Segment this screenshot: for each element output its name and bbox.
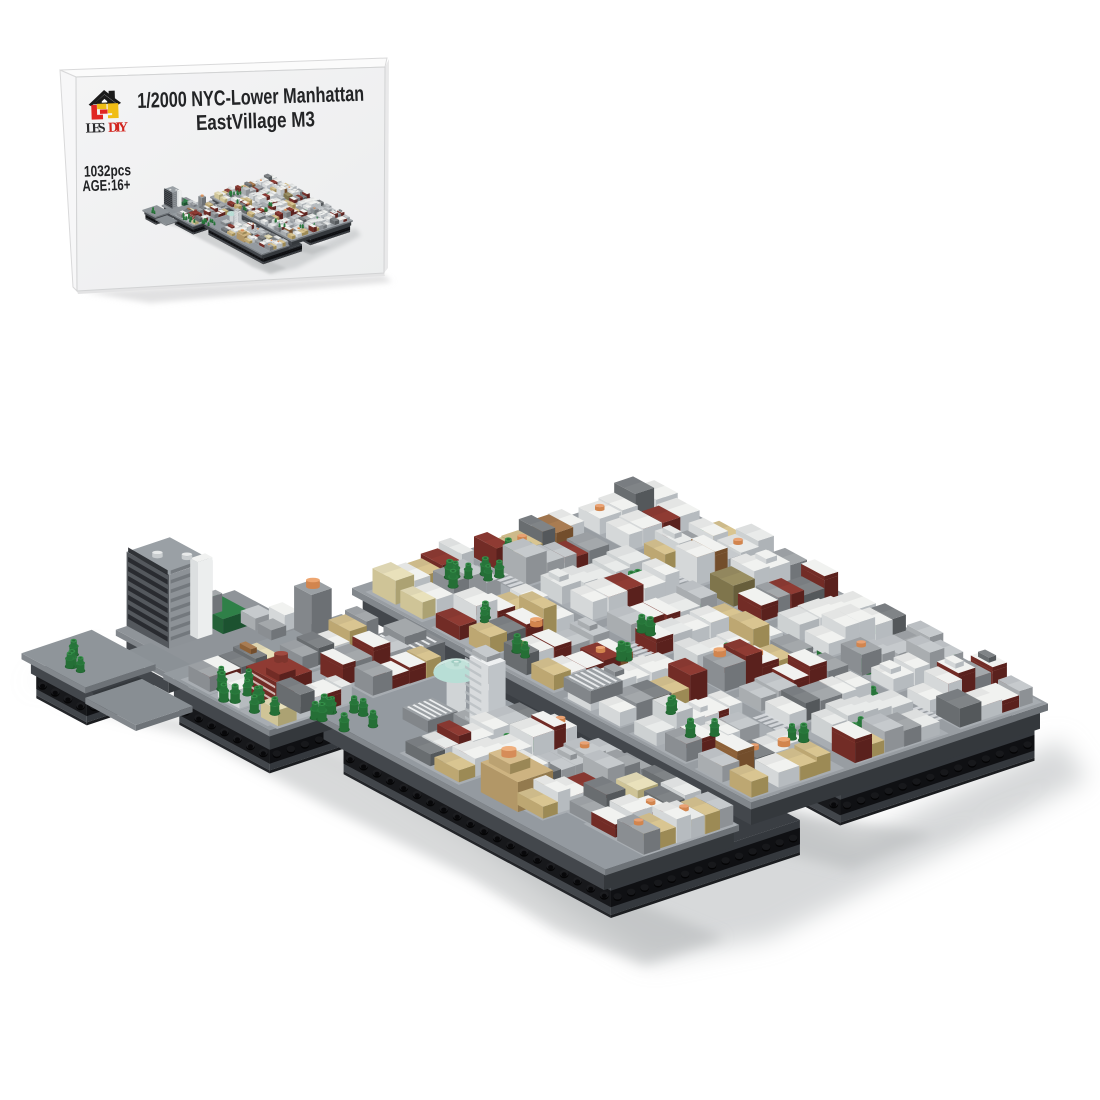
- svg-text:LES: LES: [85, 121, 106, 137]
- svg-text:AGE:16+: AGE:16+: [82, 177, 131, 196]
- svg-text:DIY: DIY: [108, 120, 128, 136]
- svg-text:EastVillage M3: EastVillage M3: [196, 107, 316, 135]
